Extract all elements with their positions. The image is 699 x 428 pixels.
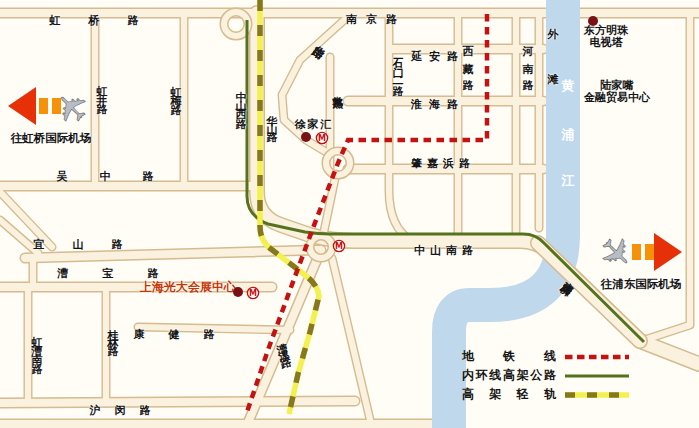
west-arrow (8, 87, 36, 125)
legend-label-light-rail: 高架轻轨 (462, 386, 556, 403)
svg-text:M: M (335, 242, 343, 251)
legend: 地铁线 内环线高架公路 高架轻轨 (462, 347, 631, 404)
legend-swatch-metro-line (563, 352, 631, 362)
xujiahui-dot (301, 132, 311, 142)
legend-item-light-rail: 高架轻轨 (462, 385, 631, 404)
legend-item-inner-ring: 内环线高架公路 (462, 366, 631, 385)
shanghai-road-map: 虹桥路南京路延安路淮海路肇嘉浜路中山南路吴中路宜山路漕宝路康健路沪闵路虹井路虹梅… (0, 0, 699, 428)
svg-text:M: M (318, 134, 326, 143)
airplane-east-icon: ✈ (592, 226, 684, 282)
oriental-pearl-dot (588, 16, 598, 26)
legend-swatch-light-rail (563, 390, 631, 400)
legend-swatch-inner-ring (563, 371, 631, 381)
legend-label-metro-line: 地铁线 (462, 348, 556, 365)
svg-text:✈: ✈ (44, 80, 94, 132)
metro-station-icon-xujiahui: M (315, 130, 329, 144)
legend-label-inner-ring: 内环线高架公路 (462, 367, 556, 384)
airplane-west-icon: ✈ (6, 80, 94, 136)
east-arrow (654, 233, 682, 271)
everbright-center-dot (233, 287, 243, 297)
metro-station-icon-zhongshan-south: M (332, 238, 346, 252)
svg-text:M: M (249, 289, 257, 298)
metro-station-icon-everbright: M (246, 285, 260, 299)
legend-item-metro-line: 地铁线 (462, 347, 631, 366)
